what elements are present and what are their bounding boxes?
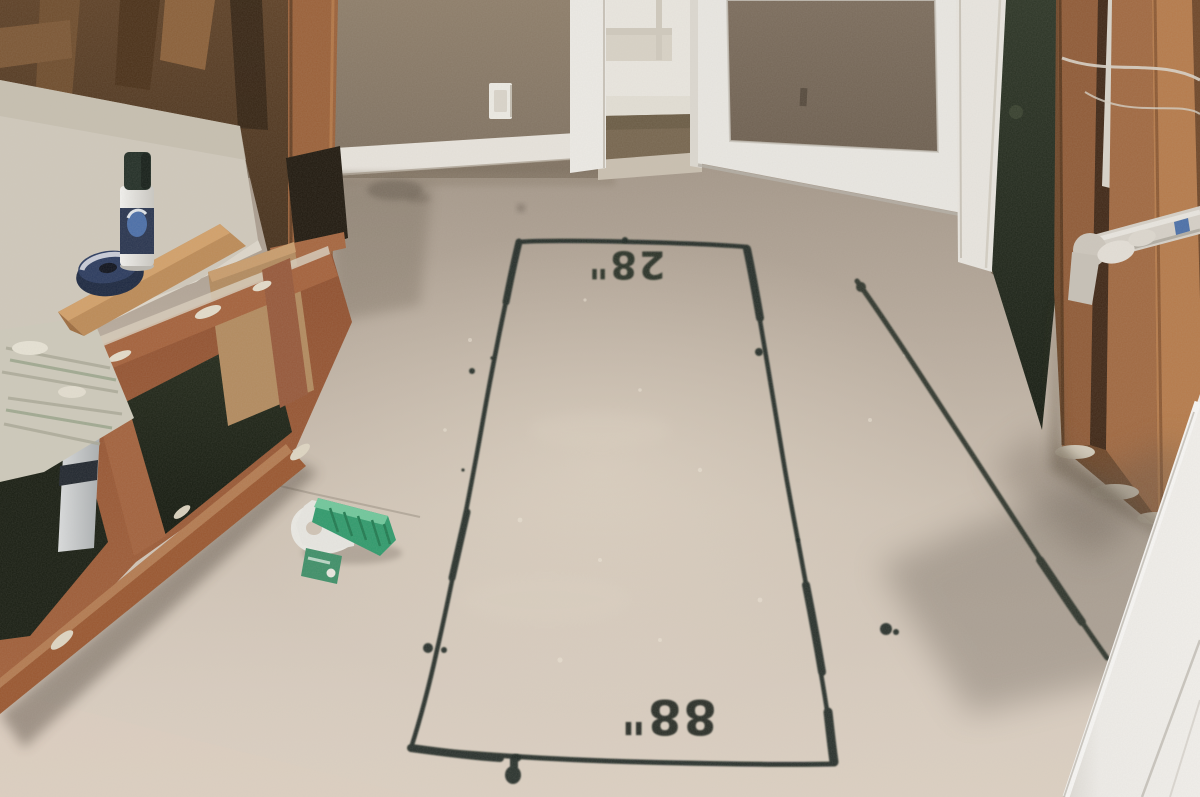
scene-canvas: 28" 88" [0,0,1200,797]
grain-overlay [0,0,1200,797]
renovation-photo: 28" 88" [0,0,1200,797]
